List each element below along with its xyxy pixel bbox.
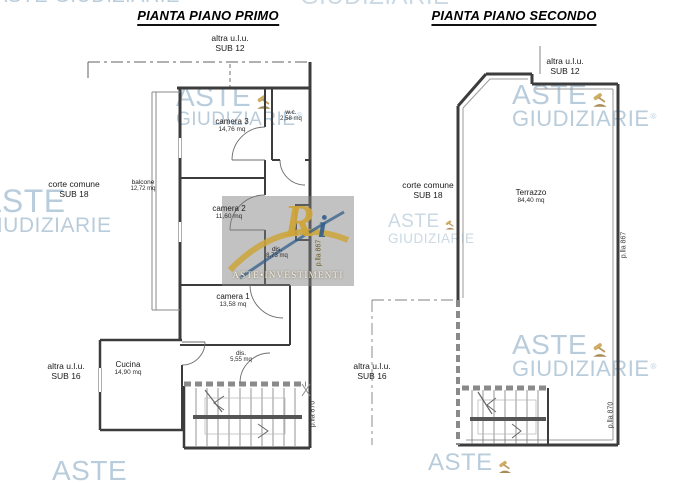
- adjacent-line2: SUB 12: [546, 66, 583, 76]
- room-label-terrazzo: Terrazzo 84,40 mq: [516, 188, 547, 204]
- room-label-balcone: balcone 12,72 mq: [130, 179, 155, 192]
- plan-primo-balcony: [152, 92, 180, 310]
- adjacent-line2: SUB 12: [211, 43, 248, 53]
- adjacent-unit-sub16-primo: altra u.l.u. SUB 16: [47, 361, 84, 381]
- adjacent-line1: altra u.l.u.: [546, 56, 583, 66]
- plan-title-secondo: PIANTA PIANO SECONDO: [431, 8, 596, 26]
- adjacent-line2: SUB 16: [47, 371, 84, 381]
- room-area: 13,58 mq: [216, 301, 249, 308]
- parcel-label-867-primo: p.lla 867: [316, 240, 323, 266]
- plan-secondo-walls: [372, 46, 618, 445]
- room-name: camera 1: [216, 292, 249, 301]
- room-name: Cucina: [114, 360, 141, 369]
- adjacent-line2: SUB 18: [48, 189, 100, 199]
- logo-monogram-r: R: [284, 196, 315, 247]
- adjacent-line1: corte comune: [48, 179, 100, 189]
- parcel-label-870-primo: p.lla 870: [310, 401, 317, 427]
- room-name: dis.: [266, 246, 288, 253]
- room-label-dis-1: dis. 8,73 mq: [266, 246, 288, 259]
- adjacent-line1: altra u.l.u.: [353, 361, 390, 371]
- room-area: 84,40 mq: [516, 197, 547, 204]
- room-name: camera 3: [215, 117, 248, 126]
- room-area: 14,90 mq: [114, 369, 141, 376]
- room-label-camera3: camera 3 14,76 mq: [215, 117, 248, 133]
- room-name: balcone: [130, 179, 155, 186]
- adjacent-line2: SUB 16: [353, 371, 390, 381]
- floorplan-sheet: ASTE GIUDIZIARIE GIUDIZIARIE ASTE GIUDIZ…: [0, 0, 678, 483]
- room-name: camera 2: [212, 204, 245, 213]
- room-area: 5,55 mq: [230, 357, 252, 363]
- adjacent-unit-sub12-secondo: altra u.l.u. SUB 12: [546, 56, 583, 76]
- room-area: 14,76 mq: [215, 126, 248, 133]
- room-name: Terrazzo: [516, 188, 547, 197]
- room-label-cucina: Cucina 14,90 mq: [114, 360, 141, 376]
- room-label-camera1: camera 1 13,58 mq: [216, 292, 249, 308]
- room-label-camera2: camera 2 11,60 mq: [212, 204, 245, 220]
- parcel-label-867-secondo: p.lla 867: [621, 232, 628, 258]
- adjacent-corte-comune-primo: corte comune SUB 18: [48, 179, 100, 199]
- room-area: 2,58 mq: [280, 116, 302, 122]
- room-label-dis-2: dis. 5,55 mq: [230, 350, 252, 363]
- logo-caption: ASTE•INVESTIMENTI: [222, 270, 354, 280]
- plan-primo-stairs: [193, 384, 310, 446]
- adjacent-line1: altra u.l.u.: [47, 361, 84, 371]
- room-area: 11,60 mq: [212, 213, 245, 220]
- room-area: 12,72 mq: [130, 186, 155, 192]
- parcel-label-870-secondo: p.lla 870: [608, 402, 615, 428]
- adjacent-corte-comune-secondo: corte comune SUB 18: [402, 180, 454, 200]
- room-name: dis.: [230, 350, 252, 357]
- adjacent-line1: altra u.l.u.: [211, 33, 248, 43]
- plan-primo-windows: [99, 138, 182, 392]
- room-area: 8,73 mq: [266, 253, 288, 259]
- adjacent-unit-sub16-secondo: altra u.l.u. SUB 16: [353, 361, 390, 381]
- plan-title-primo: PIANTA PIANO PRIMO: [137, 8, 279, 26]
- room-name: w.c.: [280, 109, 302, 116]
- adjacent-line2: SUB 18: [402, 190, 454, 200]
- plan-secondo-stairs: [470, 390, 546, 444]
- adjacent-line1: corte comune: [402, 180, 454, 190]
- adjacent-unit-sub12-primo: altra u.l.u. SUB 12: [211, 33, 248, 53]
- room-label-wc: w.c. 2,58 mq: [280, 109, 302, 122]
